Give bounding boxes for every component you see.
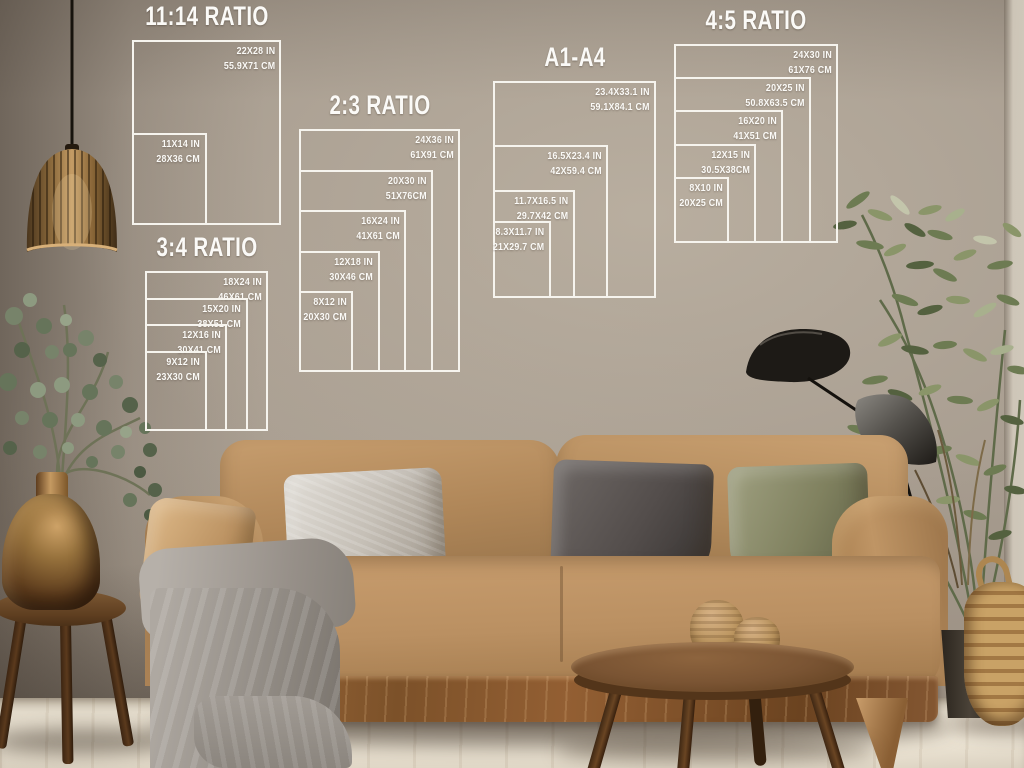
size-rect: 8X10 IN20X25 CM [674, 177, 729, 243]
group-title-text: A1-A4 [544, 42, 605, 73]
size-group-a1-a4: A1-A4 23.4X33.1 IN59.1X84.1 CM16.5X23.4 … [493, 81, 656, 298]
group-title: 3:4 RATIO [140, 232, 273, 263]
size-rect: 9X12 IN23X30 CM [145, 351, 207, 431]
group-title: 4:5 RATIO [689, 5, 822, 36]
size-label: 12X15 IN30.5X38CM [692, 148, 750, 178]
size-label: 16X24 IN41X61 CM [348, 214, 400, 244]
size-label: 12X18 IN30X46 CM [321, 255, 373, 285]
size-label: 8X10 IN20X25 CM [671, 181, 723, 211]
size-label: 20X25 IN50.8X63.5 CM [734, 81, 805, 111]
size-label: 8.3X11.7 IN21X29.7 CM [483, 225, 544, 255]
group-title-text: 3:4 RATIO [156, 232, 257, 263]
size-group-2-3: 2:3 RATIO 24X36 IN61X91 CM20X30 IN51X76C… [299, 129, 460, 372]
size-label: 16.5X23.4 IN42X59.4 CM [537, 149, 602, 179]
size-label: 23.4X33.1 IN59.1X84.1 CM [579, 85, 650, 115]
size-group-3-4: 3:4 RATIO 18X24 IN46X61 CM15X20 IN38X51 … [145, 271, 268, 431]
size-rect: 11X14 IN28X36 CM [132, 133, 207, 226]
group-title: 2:3 RATIO [313, 90, 446, 121]
size-rect: 8X12 IN20X30 CM [299, 291, 353, 372]
living-room-print-size-guide: 11:14 RATIO 22X28 IN55.9X71 CM11X14 IN28… [0, 0, 1024, 768]
group-title: A1-A4 [534, 42, 615, 73]
size-label: 22X28 IN55.9X71 CM [214, 44, 275, 74]
size-label: 16X20 IN41X51 CM [725, 114, 777, 144]
size-rect: 8.3X11.7 IN21X29.7 CM [493, 221, 551, 298]
size-label: 20X30 IN51X76CM [378, 174, 427, 204]
group-title-text: 11:14 RATIO [145, 1, 269, 32]
size-label: 8X12 IN20X30 CM [295, 295, 347, 325]
size-label: 9X12 IN23X30 CM [148, 355, 200, 385]
group-title: 11:14 RATIO [125, 1, 288, 32]
size-guide-overlay: 11:14 RATIO 22X28 IN55.9X71 CM11X14 IN28… [0, 0, 1024, 768]
size-group-11-14: 11:14 RATIO 22X28 IN55.9X71 CM11X14 IN28… [132, 40, 281, 225]
size-group-4-5: 4:5 RATIO 24X30 IN61X76 CM20X25 IN50.8X6… [674, 44, 838, 243]
size-label: 11.7X16.5 IN29.7X42 CM [504, 194, 568, 224]
group-title-text: 2:3 RATIO [329, 90, 430, 121]
size-label: 24X30 IN61X76 CM [780, 48, 832, 78]
size-label: 24X36 IN61X91 CM [402, 133, 454, 163]
group-title-text: 4:5 RATIO [705, 5, 806, 36]
size-label: 11X14 IN28X36 CM [148, 137, 200, 167]
